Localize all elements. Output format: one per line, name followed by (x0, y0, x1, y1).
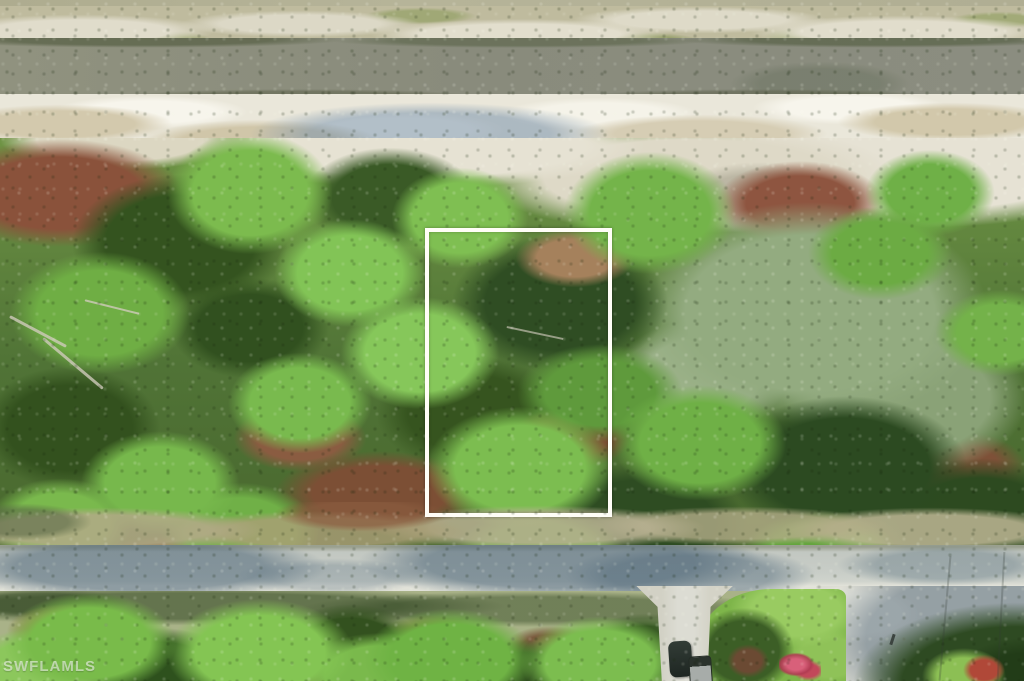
mls-watermark: SWFLAMLS (3, 658, 96, 675)
aerial-photo-stage: SWFLAMLS (0, 0, 1024, 681)
photo-grain-overlay (0, 0, 1024, 681)
